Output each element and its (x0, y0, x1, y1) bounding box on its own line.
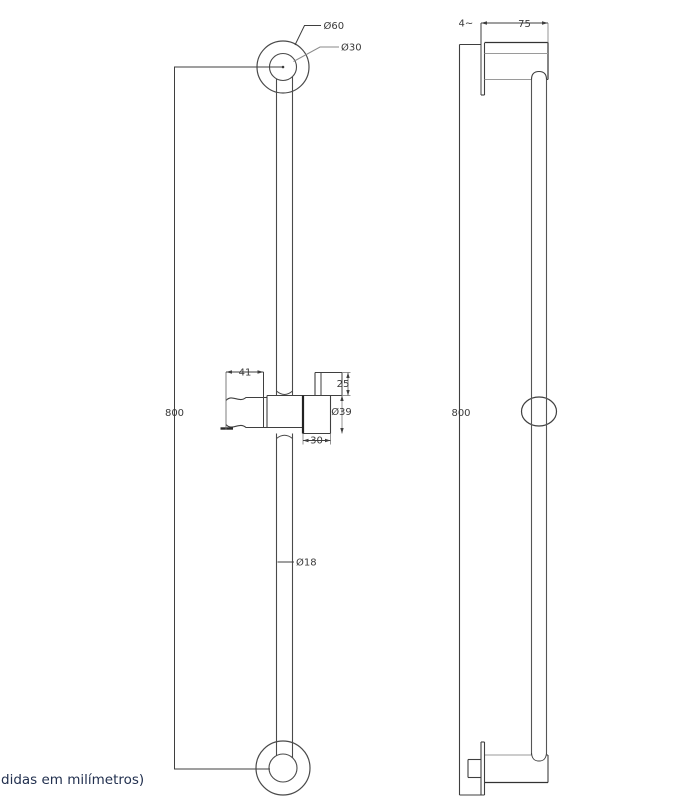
side-height-dimension-label: 800 (451, 408, 470, 419)
arrow-down-icon (340, 428, 343, 434)
escutcheon-width-label: 75 (518, 19, 531, 30)
rail-break-arc-bottom (277, 435, 293, 438)
outer-diameter-leader-line (295, 26, 321, 46)
units-caption: didas em milímetros) (1, 772, 144, 788)
bar-top-dome (532, 72, 547, 80)
arrow-left-icon (226, 370, 232, 374)
arrow-up-icon (346, 373, 349, 379)
front-view: 800 Ø60 Ø30 41 (165, 20, 362, 795)
bottom-flange-inner-circle (269, 754, 297, 782)
front-height-dimension-line (175, 67, 283, 769)
holder-length-label: 41 (239, 368, 252, 379)
arrow-left-icon (303, 439, 309, 442)
arrow-up-icon (340, 396, 343, 402)
slider-ball (522, 397, 557, 426)
arrow-right-icon (542, 21, 548, 25)
top-flange-center-mark (282, 66, 285, 69)
outer-diameter-label: Ø60 (324, 20, 345, 32)
top-knob-height-label: 25 (337, 379, 350, 390)
arrow-left-icon (481, 21, 487, 25)
bar-bottom-flare (532, 753, 547, 761)
bar-diameter-label: Ø18 (296, 557, 317, 569)
side-view: 75 4~ 800 (451, 19, 556, 796)
front-height-dimension-label: 800 (165, 408, 184, 419)
plate-thickness-label: 4~ (459, 19, 474, 30)
arrow-down-icon (346, 390, 349, 396)
inner-diameter-leader-line (294, 47, 340, 62)
rail-break-arc-top (277, 391, 293, 395)
arrow-right-icon (325, 439, 331, 442)
knob-depth-label: 30 (310, 436, 323, 447)
technical-drawing-page: 800 Ø60 Ø30 41 (0, 0, 685, 800)
arrow-right-icon (258, 370, 264, 374)
holder-arm-top-edge (226, 398, 267, 401)
shower-rail-technical-drawing: 800 Ø60 Ø30 41 (0, 0, 685, 800)
inner-diameter-label: Ø30 (341, 42, 362, 54)
knob-diameter-label: Ø39 (331, 406, 352, 418)
